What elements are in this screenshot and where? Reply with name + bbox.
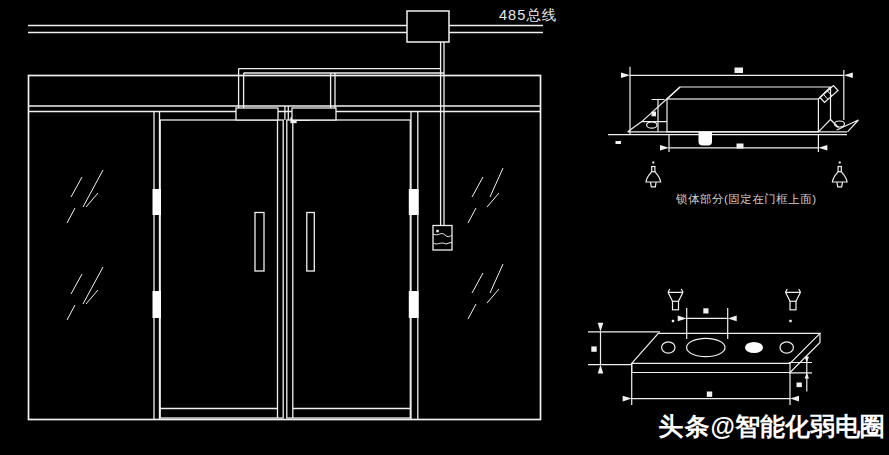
- bus-485-label: 485总线: [499, 6, 557, 25]
- cad-drawing-canvas: 485总线 锁体部分(固定在门框上面) 头条@智能化弱电圈: [0, 0, 889, 455]
- dim-label-blob: [703, 308, 708, 313]
- lock-body-side-view: [608, 67, 858, 187]
- dim-label-blob: [735, 68, 744, 74]
- filled-hole: [745, 342, 763, 353]
- lock-side-view-caption: 锁体部分(固定在门框上面): [676, 192, 817, 207]
- glass-hatch-left-top: [67, 170, 103, 223]
- dim-label-blob: [707, 392, 712, 397]
- glass-hatch-right-top: [468, 168, 503, 223]
- door-frame: [29, 76, 541, 420]
- left-door-leaf: [160, 120, 283, 418]
- dim-plate-width: [632, 364, 790, 405]
- door-handle-right: [307, 213, 315, 272]
- watermark-handle: @智能化弱电圈: [711, 410, 885, 443]
- screw-icon-left: [668, 289, 683, 322]
- dim-label-blob: [616, 141, 622, 144]
- dim-body-height: [652, 100, 665, 132]
- screw-icon-right: [786, 289, 801, 322]
- watermark-brand: 头条: [659, 410, 711, 443]
- door-handle-left: [255, 213, 264, 272]
- dim-main-hole: [687, 308, 728, 339]
- lock-body-box: [642, 86, 839, 132]
- dim-label-blob: [652, 112, 657, 117]
- glass-hatch-right-bottom: [468, 264, 503, 319]
- drawing-linework: [0, 0, 889, 455]
- dim-label-blob: [797, 383, 802, 388]
- glass-hatch-left-bottom: [67, 267, 103, 320]
- right-door-leaf: [287, 118, 411, 418]
- lock-bolt: [699, 132, 713, 146]
- mounting-screw-icon-left: [646, 162, 661, 187]
- exit-button-device: [433, 226, 452, 251]
- door-closer-left: [236, 108, 278, 120]
- dim-label-blob: [591, 346, 596, 351]
- dim-body-width: [669, 135, 818, 152]
- hinge-blocks: [153, 189, 419, 318]
- dim-overall-width: [630, 67, 844, 135]
- watermark: 头条@智能化弱电圈: [659, 410, 885, 443]
- controller-box: [407, 11, 449, 42]
- dim-plate-depth: [588, 332, 660, 365]
- dim-label-blob: [737, 144, 744, 149]
- plate-body: [632, 333, 820, 372]
- bus-485-lines: [28, 26, 543, 33]
- door-closer-right: [292, 108, 336, 120]
- strike-plate-view: [588, 289, 820, 405]
- mounting-screw-icon-right: [832, 162, 847, 187]
